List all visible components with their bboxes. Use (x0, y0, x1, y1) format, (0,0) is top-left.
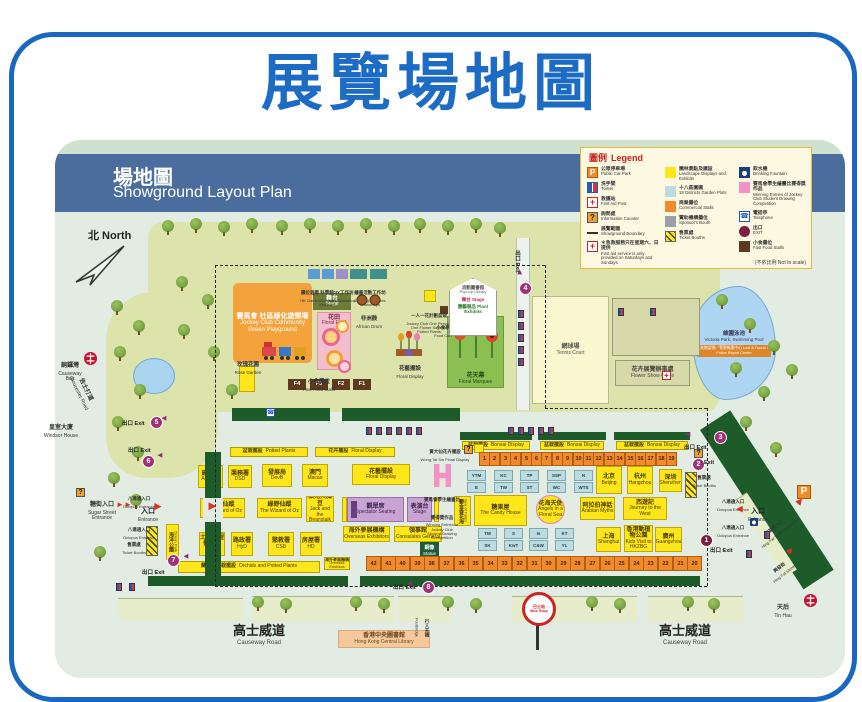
legend-item-text: 飲水機Drinking Fountain (753, 167, 787, 177)
tree-icon (350, 596, 362, 608)
label-zh: 小食攤位 (308, 379, 330, 385)
tree-icon (252, 596, 264, 608)
label-en: Tin Hau (768, 614, 798, 620)
commercial-stall-37: 37 (439, 556, 454, 571)
district-plot-WC: WC (547, 482, 566, 493)
shenzhen: 深圳Shenzhen (659, 469, 682, 492)
legend-title: 圖例 Legend (589, 151, 643, 164)
tree-icon (226, 384, 238, 396)
label-en: Ocean Park (173, 531, 177, 552)
commercial-stall-23: 23 (643, 556, 658, 571)
label-en: Kids Visit to HKZBG (625, 540, 652, 551)
label-en: The Candy House (480, 511, 520, 516)
legend-item-text: 園林景點及擺設Landscape Displays and Exhibits (679, 167, 735, 182)
label-en: Shanghai (598, 540, 619, 545)
hedge-a (232, 408, 330, 421)
legend-item-text: 電話亭Telephone (753, 211, 773, 221)
sw-orange-icon (665, 201, 676, 212)
commercial-stall-24: 24 (629, 556, 644, 571)
kids-hkzbg: 香港動植物公園Kids Visit to HKZBG (624, 525, 653, 552)
commercial-stall-27: 27 (585, 556, 600, 571)
legend-column-3: 飲水機Drinking Fountain賽馬會學生繪畫比賽得獎作品Winning… (739, 167, 809, 256)
district-plot-pair: TPST (520, 470, 537, 489)
tree-icon (190, 218, 202, 230)
label-en: Floral Display (366, 475, 396, 480)
label-zh: 盆栽擺設 (243, 449, 263, 454)
legend-item: 飲水機Drinking Fountain (739, 167, 809, 178)
map-caption: 非洲鼓African Drum (352, 307, 386, 330)
label-zh: 入口 (751, 508, 765, 515)
map-caption: 高士威道Causeway Road (648, 622, 722, 646)
district-plot-N: N (574, 470, 593, 481)
label-en: Shenzhen (659, 481, 682, 486)
tree-icon (470, 218, 482, 230)
office-building (612, 298, 700, 356)
page: 展覽場地圖 場地圖 Showground Layout Plan 賽馬會 社區綠… (0, 0, 862, 702)
commercial-stall-17: 17 (645, 452, 656, 466)
african-drum-icons (356, 294, 382, 306)
macao: 澳門Macao (302, 464, 328, 487)
label-en: Winning Entries of Jockey Club Student D… (424, 523, 460, 541)
label-zh: 小食亭 (436, 325, 450, 330)
sw-lblue-icon (665, 186, 676, 197)
tree-icon (442, 596, 454, 608)
label-en: Floral Marquee (459, 380, 493, 385)
tree-icon (494, 222, 506, 234)
firstaid-icon: + (587, 197, 598, 208)
tree-icon (332, 220, 344, 232)
label-en: Tennis Court (556, 351, 584, 356)
map-caption: 行人天橋Footbridge (420, 600, 436, 656)
arabian-myths: 阿拉伯神話Arabian Myths (580, 497, 615, 520)
commercial-stall-22: 22 (658, 556, 673, 571)
label-en: Spectator Seating (356, 510, 396, 515)
commercial-stall-39: 39 (410, 556, 425, 571)
label-en: Beijing (601, 481, 616, 486)
district-plot-KC: KC (494, 470, 513, 481)
bus-stop-pole (536, 622, 539, 650)
label-zh: 黃大仙花卉擺設 (429, 449, 461, 454)
spectator-seating: 觀眾席Spectator Seating (347, 497, 404, 522)
label-en: Floral Display (351, 449, 381, 454)
label-en: Bonsai Display (491, 443, 524, 448)
label-en: Ticket Booths (690, 484, 718, 488)
legend-item: 贊助機構攤位Sponsor's Booth (665, 216, 735, 227)
commercial-stall-28: 28 (570, 556, 585, 571)
ticket-icon (665, 231, 676, 242)
toilet-icon (518, 322, 524, 330)
label-zh: 糖街入口 (90, 502, 114, 508)
district-plot-YTM: YTM (467, 470, 486, 481)
legend-item-text: 公眾停車場Public Car Park (601, 167, 631, 177)
label-en: Floral Display (388, 375, 432, 380)
legend-item: P公眾停車場Public Car Park (587, 167, 659, 178)
train-illustration (262, 342, 310, 361)
commercial-stall-20: 20 (687, 556, 702, 571)
commercial-stall-30: 30 (541, 556, 556, 571)
sw-grey-icon (665, 216, 676, 227)
label-en: Hong Kong Central Library (354, 640, 413, 645)
tree-icon (786, 364, 798, 376)
commercial-stall-32: 32 (512, 556, 527, 571)
district-plot-pair: SSPWC (547, 470, 564, 489)
devb: 發展局DevB (262, 464, 292, 487)
label-zh: 八達通入口 (128, 527, 151, 532)
tree-icon (176, 276, 188, 288)
map-caption: 天后Tin Hau (768, 596, 798, 619)
commercial-stall-34: 34 (483, 556, 498, 571)
district-plot-KwT: KwT (504, 540, 523, 551)
bus-stop-en: Bus Stop (530, 608, 548, 613)
legend-item: 售票處Ticket Booths (665, 231, 735, 242)
commercial-stall-12: 12 (593, 452, 604, 466)
commercial-stall-29: 29 (556, 556, 571, 571)
commercial-stall-42: 42 (366, 556, 381, 571)
tree-icon (246, 218, 258, 230)
potted-plants-strip: 盆栽擺設Potted Plants (230, 447, 308, 457)
tree-icon (208, 346, 220, 358)
label-en: Ticket Booths (120, 551, 148, 555)
tennis-court: 網球場Tennis Court (532, 296, 609, 404)
showground-boundary (545, 265, 546, 408)
map-layer: 賽馬會 社區綠化遊樂場Jockey Club Community Green P… (0, 0, 862, 702)
legend-item-text: 展覽範圍Showground Boundary (601, 227, 645, 237)
direction-arrow: ► (734, 503, 745, 514)
legend-item: 園林景點及擺設Landscape Displays and Exhibits (665, 167, 735, 182)
csd: 懲教署CSD (268, 532, 294, 556)
label-en: The Wizard of Oz (260, 509, 299, 514)
district-plot-pair: NWTS (574, 470, 591, 489)
label-en: Arabian Myths (582, 509, 614, 514)
dsd: 渠務署DSD (228, 465, 252, 488)
tree-icon (280, 598, 292, 610)
flower-decor (336, 320, 349, 333)
direction-arrow: ► (152, 500, 164, 512)
district-plot-pair: SKwT (504, 528, 521, 547)
direction-arrow: ► (160, 414, 168, 422)
information-icon: ? (464, 445, 473, 454)
commercial-stall-35: 35 (468, 556, 483, 571)
legend-item: ?詢問處Information Counter (587, 212, 659, 223)
legend-title-en: Legend (611, 153, 643, 163)
tree-icon (744, 318, 756, 330)
tree-icon (586, 596, 598, 608)
toilet-icon (746, 550, 752, 558)
legend-item: +＊急救服務只在星期六、日提供First aid service is only… (587, 241, 659, 266)
workshop-drawing1 (350, 269, 367, 279)
label-en: Sea of Tulips (463, 499, 467, 522)
label-en: Causeway Road (222, 640, 296, 647)
workshop-diy (336, 269, 348, 279)
label-zh: 玫瑰花園 (237, 362, 259, 368)
jack-beanstalk: 傑克與魔豆Jack and the Beanstalk (306, 496, 334, 522)
tree-icon (758, 386, 770, 398)
angels-floral-sea: 花海天使Angels in a Floral Sea (536, 495, 565, 524)
showground-boundary (707, 408, 708, 586)
label-zh: 非洲鼓 (361, 316, 378, 322)
one-flower-scheme (424, 290, 436, 302)
hedge-e (614, 432, 690, 440)
walk-1 (118, 598, 243, 620)
exit-label-5: 出口 Exit (122, 419, 145, 427)
label-en: Overseas Exhibitors (325, 562, 349, 570)
tree-icon (360, 218, 372, 230)
commercial-stall-40: 40 (395, 556, 410, 571)
district-plot-pair: KTYL (555, 528, 572, 547)
district-plot-S: S (504, 528, 523, 539)
district-plot-pair: TMSK (478, 528, 495, 547)
label-en: Footbridge (414, 600, 418, 656)
info-icon: ? (587, 212, 598, 223)
workshop-drawing2 (370, 269, 387, 279)
slat-1 (342, 497, 347, 522)
toilet-icon (518, 427, 524, 435)
legend-item-text: 贊助機構攤位Sponsor's Booth (679, 216, 710, 226)
toilet-icon (518, 310, 524, 318)
commercial-stall-7: 7 (541, 452, 552, 466)
district-plot-E: E (467, 482, 486, 493)
toilet-icon (618, 308, 624, 316)
floral-display-strip: 花卉擺設Floral Display (315, 447, 395, 457)
label-en: Causeway Road (648, 640, 722, 647)
toilet-icon (129, 583, 135, 591)
library-plants-label: 園藝展品 Plant Exhibits (450, 304, 496, 314)
toilet-icon (518, 358, 524, 366)
exit-label-7: 出口 Exit (142, 568, 165, 576)
flower-show-office: 花卉展覽辦事處Flower Show Office (615, 360, 690, 386)
commercial-stall-2: 2 (489, 452, 500, 466)
tree-icon (388, 220, 400, 232)
label-zh: 賽馬會學生繪畫比賽得獎作品 (424, 497, 460, 520)
information-icon: ? (76, 488, 85, 497)
map-caption: 花藝擺設Floral Display (388, 357, 432, 380)
hedge-b (342, 408, 460, 421)
candy-house: 糖果屋The Candy House (474, 495, 527, 526)
label-en: Guangzhou (656, 540, 682, 545)
tree-icon (114, 346, 126, 358)
tree-icon (178, 324, 190, 336)
legend-item: ☎電話亭Telephone (739, 211, 809, 222)
tree-icon (218, 221, 230, 233)
label-en: Wong Tai Sin Floral Display (418, 458, 472, 462)
toilet-icon (650, 308, 656, 316)
flower-decor (338, 360, 351, 373)
map-caption: 小食攤位Fast Food Stalls (292, 370, 346, 393)
hyd: 路政署HyD (231, 532, 253, 556)
label-zh: 香港動植物公園 (625, 527, 652, 540)
label-zh: 花卉擺設 (328, 449, 348, 454)
label-en: Octopus Entrance (714, 508, 752, 512)
district-plot-ST: ST (520, 482, 539, 493)
commercial-stall-41: 41 (381, 556, 396, 571)
legend-item: 賽馬會學生繪畫比賽得獎作品Winning Entries of Jockey C… (739, 182, 809, 207)
legend-item-text: ＊急救服務只在星期六、日提供First aid service is only … (601, 241, 659, 266)
legend-item-text: 救護站First Aid Post (601, 197, 626, 207)
direction-arrow: ► (182, 552, 190, 560)
legend-item: 商業攤位Commercial Stalls (665, 201, 735, 212)
overseas-exhibitors: 海外參展機構Overseas Exhibitors (343, 526, 390, 542)
tree-icon (768, 340, 780, 352)
wizard-of-oz-2: 綠野仙蹤The Wizard of Oz (257, 498, 302, 518)
label-en: Potted Plants (266, 449, 296, 454)
overseas-small: 海外參展機構Overseas Exhibitors (324, 557, 350, 570)
label-zh: F1 (359, 382, 365, 388)
district-plot-pair: YTME (467, 470, 484, 489)
legend-column-2: 園林景點及擺設Landscape Displays and Exhibits十八… (665, 167, 735, 246)
commercial-stall-21: 21 (673, 556, 688, 571)
commercial-stall-33: 33 (497, 556, 512, 571)
exit-7: 7 (167, 554, 180, 567)
district-plot-SK: SK (478, 540, 497, 551)
north-arrow-icon (70, 242, 130, 288)
label-en: Bonsai Display (567, 443, 600, 448)
exit-label-3: 出口 Exit (684, 443, 707, 451)
label-en: HD (307, 545, 314, 550)
toilet-icon (116, 583, 122, 591)
district-plot-C&W: C&W (529, 540, 548, 551)
tree-icon (682, 596, 694, 608)
library-label-en: Pop-Up Library (460, 290, 487, 295)
legend-item: 展覽範圍Showground Boundary (587, 227, 659, 237)
tree-icon (134, 384, 146, 396)
toilet-icon (548, 427, 554, 435)
label-en: Orchids and Potted Plants (239, 564, 297, 569)
workshop-games (308, 269, 320, 279)
label-en: Rose Garden (226, 371, 270, 376)
commercial-stall-36: 36 (454, 556, 469, 571)
sw-yellow-icon (665, 167, 676, 178)
showground-boundary (545, 408, 707, 409)
tree-icon (770, 442, 782, 454)
legend-item-text: 洗手間Toilets (601, 182, 615, 192)
toilet-icon (376, 427, 382, 435)
label-zh: 花藝擺設 (399, 366, 421, 372)
label-zh: 售票處 (127, 542, 141, 547)
toilet-icon (528, 427, 534, 435)
label-en: Jockey Club Community Green Playground (233, 320, 312, 333)
toilet-icon (587, 182, 598, 193)
toilet-icon (416, 427, 422, 435)
district-plot-SSP: SSP (547, 470, 566, 481)
legend-scale-note: (不依比例 Not to scale) (755, 259, 806, 266)
hd: 房屋署HD (300, 532, 322, 556)
label-en: CSD (276, 545, 287, 550)
district-plot-pair: KCTW (494, 470, 511, 489)
workshop-museum (322, 269, 334, 279)
tree-icon (378, 598, 390, 610)
label-zh: 售票處 (697, 475, 711, 480)
exit-3: 3 (714, 431, 727, 444)
district-plot-WTS: WTS (574, 482, 593, 493)
toilet-icon (406, 427, 412, 435)
drinking-fountain-icon (750, 518, 758, 526)
fast-food-f1: F1 (353, 379, 371, 390)
tree-icon (94, 546, 106, 558)
walk-6 (648, 596, 743, 622)
label-en: DSD (235, 477, 246, 482)
exit-label-6: 出口 Exit (128, 446, 151, 454)
exit-8: 8 (422, 581, 435, 594)
tree-icon (442, 220, 454, 232)
journey-to-west: 西遊記Journey to the West (623, 497, 667, 520)
label-zh: 天后 (777, 605, 789, 611)
mtr-station-icon (804, 594, 817, 607)
toilet-icon (396, 427, 402, 435)
legend-column-1: P公眾停車場Public Car Park洗手間Toilets+救護站First… (587, 167, 659, 270)
legend-item-text: 十八區園圃18 Districts Garden Plots (679, 186, 727, 196)
label-en: Jack and the Beanstalk (307, 507, 333, 522)
tree-icon (716, 294, 728, 306)
tree-icon (276, 220, 288, 232)
label-en: HyD (237, 545, 247, 550)
tree-icon (708, 598, 720, 610)
toilet-icon (508, 427, 514, 435)
direction-arrow: ► (516, 268, 524, 276)
tree-icon (414, 218, 426, 230)
shanghai: 上海Shanghai (596, 527, 621, 552)
floral-display-big: 花藝擺設Floral Display (352, 464, 410, 485)
commercial-stall-38: 38 (424, 556, 439, 571)
legend-item: 洗手間Toilets (587, 182, 659, 193)
district-plot-TM: TM (478, 528, 497, 539)
map-caption: 賽馬會學生繪畫比賽得獎作品Winning Entries of Jockey C… (424, 488, 460, 541)
commercial-stall-19: 19 (666, 452, 677, 466)
direction-arrow: ► (156, 451, 164, 459)
orchids-strip: 蘭花及盆栽擺設Orchids and Potted Plants (178, 561, 320, 573)
label-en: Bonsai Display (647, 443, 680, 448)
guangzhou: 廣州Guangzhou (655, 527, 682, 552)
legend-item: 十八區園圃18 Districts Garden Plots (665, 186, 735, 197)
toilet-icon (386, 427, 392, 435)
label-zh: 八達通入口 (722, 525, 745, 530)
label-zh: 高士威道 (659, 623, 711, 638)
legend-item-text: 出口EXIT (753, 226, 763, 236)
toilet-icon (764, 531, 770, 539)
exit-6: 6 (142, 455, 155, 468)
district-plot-TP: TP (520, 470, 539, 481)
exit-label-2: Exit (704, 460, 714, 466)
tree-icon (133, 320, 145, 332)
tree-icon (730, 362, 742, 374)
showground-boundary (215, 586, 707, 587)
hedge-f (148, 576, 348, 586)
commercial-stall-9: 9 (562, 452, 573, 466)
toilet-icon (538, 427, 544, 435)
compass-label: 北 North (88, 227, 131, 243)
legend-title-zh: 圖例 (589, 151, 607, 164)
library-stage-label: 舞台 Stage (462, 297, 485, 302)
label-en: Sugar Street Entrance (80, 511, 124, 522)
label-en: Overseas Exhibitors (344, 535, 389, 540)
phone-icon: ☎ (739, 211, 750, 222)
label-en: African Drum (352, 325, 386, 330)
tree-icon (111, 300, 123, 312)
legend: 圖例 Legend P公眾停車場Public Car Park洗手間Toilet… (580, 147, 812, 269)
commercial-stall-14: 14 (614, 452, 625, 466)
showground-boundary (215, 265, 545, 266)
label-en: Angels in a Floral Sea (537, 507, 564, 518)
direction-arrow: ► (684, 430, 692, 438)
tree-icon (614, 598, 626, 610)
label-zh: 盆栽擺設 (624, 443, 644, 448)
commercial-stall-31: 31 (527, 556, 542, 571)
label-en: Windsor House (42, 434, 80, 440)
tulip-display (394, 331, 424, 357)
tree-icon (202, 294, 214, 306)
legend-item: 小食攤位Fast Food Stalls (739, 241, 809, 252)
direction-arrow: ► (116, 501, 124, 509)
commercial-stall-25: 25 (614, 556, 629, 571)
